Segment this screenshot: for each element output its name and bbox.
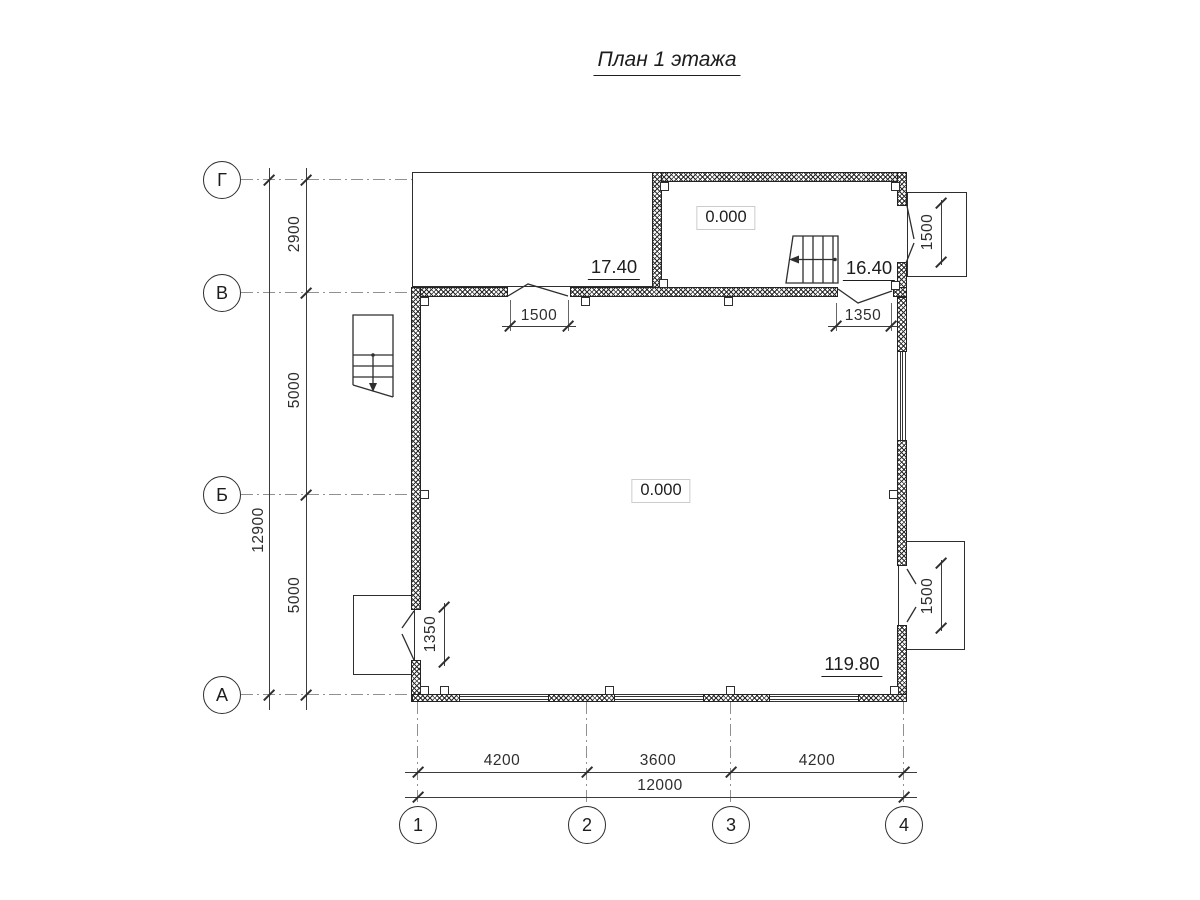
dim-bottom-overall: 12000 (637, 777, 683, 795)
pier-marker (605, 686, 614, 695)
door-hall-icon (838, 289, 892, 303)
wall-axis-v-a (412, 287, 508, 297)
dim-left-seg-ba: 5000 (286, 577, 304, 613)
pier-marker (890, 686, 899, 695)
dim-door-terrace: 1500 (521, 307, 557, 325)
elevation-main-room: 0.000 (631, 479, 690, 503)
dim-bottom-seg-34: 4200 (799, 752, 835, 770)
wall-right-b (897, 440, 907, 566)
window-bottom-3 (770, 694, 858, 702)
floor-plan-drawing: 2900 5000 12900 5000 4200 3600 4200 1200… (0, 0, 1200, 900)
window-bottom-1 (460, 694, 548, 702)
dim-line-porch-bottom-left (444, 603, 445, 666)
axis-line-4 (903, 702, 904, 806)
dim-left-seg-gv: 2900 (286, 216, 304, 252)
elevation-stairs: 16.40 (843, 257, 895, 281)
linework-overlay (0, 0, 1200, 900)
dim-left-overall: 12900 (250, 507, 268, 553)
axis-line-b (241, 494, 411, 495)
dim-line-bottom-segments (405, 772, 917, 773)
axis-line-v (241, 292, 411, 293)
wall-bottom-pier-4 (858, 694, 907, 702)
dim-left-seg-vb: 5000 (286, 372, 304, 408)
axis-line-3 (730, 702, 731, 806)
wall-left-upper (411, 287, 421, 610)
axis-line-2 (586, 702, 587, 806)
pier-marker (726, 686, 735, 695)
pier-marker (420, 490, 429, 499)
wall-bottom-pier-1 (412, 694, 460, 702)
pier-marker (440, 686, 449, 695)
wall-bottom-pier-3 (703, 694, 770, 702)
axis-circle-row-v: В (203, 274, 241, 312)
axis-circle-row-a: А (203, 676, 241, 714)
window-right-wall (897, 352, 907, 440)
pier-marker (889, 490, 898, 499)
axis-circle-col-2: 2 (568, 806, 606, 844)
axis-circle-col-1: 1 (399, 806, 437, 844)
dim-bottom-seg-12: 4200 (484, 752, 520, 770)
dim-bottom-seg-23: 3600 (640, 752, 676, 770)
dim-porch-bottom-left: 1350 (422, 616, 440, 652)
pier-marker (724, 297, 733, 306)
pier-marker (581, 297, 590, 306)
axis-circle-row-g: Г (203, 161, 241, 199)
dim-line-bottom-overall (405, 797, 917, 798)
axis-line-1 (417, 702, 418, 806)
axis-circle-col-4: 4 (885, 806, 923, 844)
wall-upper-room-top (652, 172, 907, 182)
wall-axis-v-b (570, 287, 838, 297)
stairs-left-icon (353, 315, 393, 397)
stairs-upper-room-icon (786, 236, 838, 283)
dim-line-porch-top-right (941, 200, 942, 265)
dim-porch-bottom-right: 1500 (919, 578, 937, 614)
porch-bottom-left (353, 595, 415, 675)
pier-marker (659, 279, 668, 288)
pier-marker (420, 686, 429, 695)
pier-marker (660, 182, 669, 191)
elevation-upper-room: 0.000 (696, 206, 755, 230)
wall-bottom-pier-2 (548, 694, 615, 702)
pier-marker (891, 182, 900, 191)
pier-marker (420, 297, 429, 306)
dim-porch-top-right: 1500 (919, 214, 937, 250)
dim-line-left-segments (306, 168, 307, 710)
axis-circle-col-3: 3 (712, 806, 750, 844)
drawing-title: План 1 этажа (593, 48, 740, 76)
dim-line-porch-bottom-right (941, 560, 942, 631)
elevation-terrace: 17.40 (588, 256, 640, 280)
axis-circle-row-b: Б (203, 476, 241, 514)
elevation-entrance: 119.80 (821, 653, 882, 677)
window-bottom-2 (615, 694, 703, 702)
dim-line-left-overall (269, 168, 270, 710)
pier-marker (891, 281, 900, 290)
wall-right-a (897, 297, 907, 352)
dim-door-hall: 1350 (845, 307, 881, 325)
